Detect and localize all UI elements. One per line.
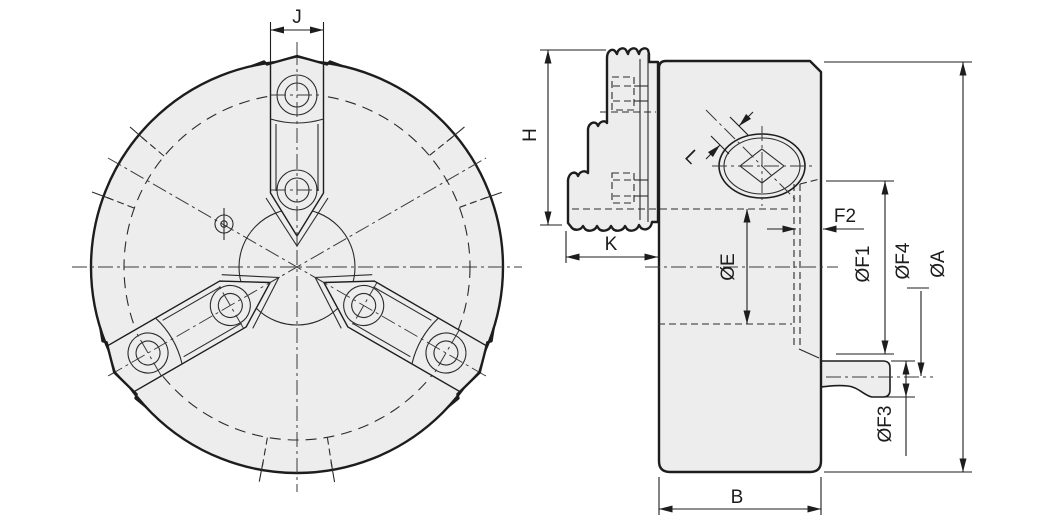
dim-label-f3: ØF3 xyxy=(875,406,896,443)
pinion-boss xyxy=(821,361,890,397)
dim-label-f4: ØF4 xyxy=(893,242,914,279)
chuck-side-view: H K L F2 ØE xyxy=(520,48,972,515)
dim-label-f2: F2 xyxy=(834,206,856,227)
dimension-b: B xyxy=(659,477,821,515)
dimension-k: K xyxy=(566,231,658,263)
chuck-technical-drawing: J xyxy=(0,0,1060,527)
dim-label-e: ØE xyxy=(718,253,739,280)
dim-label-k: K xyxy=(605,234,618,255)
drawing-canvas: J xyxy=(0,0,1060,527)
dim-label-f1: ØF1 xyxy=(853,246,874,283)
dim-label-a: ØA xyxy=(928,250,949,278)
dimension-f4: ØF4 xyxy=(893,242,929,376)
chuck-front-view: J xyxy=(72,7,522,515)
dim-label-b: B xyxy=(731,487,744,508)
dim-label-h: H xyxy=(520,128,541,142)
dim-label-j: J xyxy=(292,7,302,28)
